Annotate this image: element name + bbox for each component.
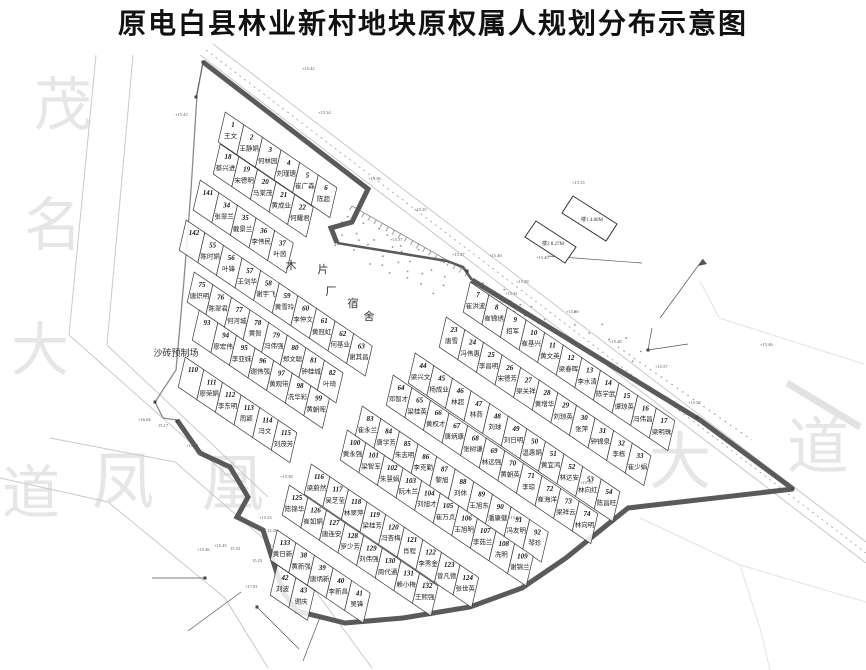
plot-number: 105 [443,502,454,510]
plot-owner-name: 朱慧娟 [380,474,400,483]
elevation-label: +17.81 [245,584,258,589]
plot-owner-name: 崔广森 [295,181,315,190]
plot-owner-name: 冯伟强 [264,341,284,350]
plot-number: 62 [339,330,347,338]
plot-number: 73 [565,497,573,505]
plot-owner-name: 梁关祥 [516,386,536,395]
plot-owner-name: 张翠兰 [214,211,234,220]
plot-owner-name: 张萍 [575,424,589,433]
plot-owner-name: 谢庆 [295,596,309,605]
plot-owner-name: 温惠娟 [522,447,542,456]
elevation-label: 15.28 [267,528,278,533]
plot-number: 15 [623,392,631,400]
plot-owner-name: 邓智才 [389,394,409,403]
plot-owner-name: 刘旭才 [417,499,437,508]
plot-owner-name: 梁祥云 [556,507,576,516]
map-canvas: 茂名大道凤凰大道1王文2王静娟3何林园4刘瑾瑭5崔广森6陈超18蔡兴进19宋德明… [0,0,866,670]
plot-owner-name: 马棠茂 [253,188,273,197]
elevation-label: +15.40 [489,253,502,258]
plot-number: 121 [407,536,418,544]
plot-owner-name: 陈锦华 [285,504,305,513]
plot-number: 102 [387,464,398,472]
plot-owner-name: 李秀金 [418,558,438,567]
plot-number: 124 [463,574,474,582]
plot-owner-name: 刘瑾瑭 [277,169,297,178]
plot-owner-name: 梁春晖 [559,364,579,373]
plot-owner-name: 黄朝英 [500,469,520,478]
plot-owner-name: 赖小梅 [396,579,416,588]
plot-owner-name: 陈学武 [596,389,616,398]
plot-number: 81 [310,357,317,365]
plot-owner-name: 冯文 [258,426,272,435]
plot-owner-name: 黄宜鸿 [541,460,561,469]
plot-number: 103 [406,477,417,485]
plan-map: 茂名大道凤凰大道1王文2王静娟3何林园4刘瑾瑭5崔广森6陈超18蔡兴进19宋德明… [0,0,866,670]
plot-owner-name: 张世英 [456,584,476,593]
plot-owner-name: 梁兴文 [411,372,431,381]
plot-owner-name: 罗少芳 [341,542,361,551]
plot-owner-name: 刘茂芳 [274,439,294,448]
plot-number: 82 [329,369,337,377]
plot-number: 69 [491,447,499,455]
plot-number: 26 [505,364,514,372]
plot-owner-name: 黄冠虹 [312,327,332,336]
plot-number: 41 [355,589,363,597]
plot-number: 67 [453,422,461,430]
plot-owner-name: 黄新强 [291,561,311,570]
plot-owner-name: 王旭明 [454,524,474,533]
plot-owner-name: 杨成业 [429,384,449,393]
plot-owner-name: 何基业 [331,340,351,349]
elevation-label: +15.30 [424,580,437,585]
plot-number: 3 [267,146,272,154]
plot-number: 88 [460,478,468,486]
plot-owner-name: 林远强 [482,457,502,466]
elevation-label: +15.48 [609,339,622,344]
plot-number: 44 [419,362,428,370]
plot-number: 95 [241,344,249,352]
elevation-label: +15.52 [688,400,701,405]
plot-number: 36 [259,227,268,235]
plot-owner-name: 刘琼英 [553,411,573,420]
plot-owner-name: 崔基兴 [522,339,542,348]
plot-owner-name: 刘休 [454,488,468,497]
plot-number: 17 [661,417,669,425]
plot-number: 42 [281,574,290,582]
plot-owner-name: 王剑华 [238,277,258,286]
plot-owner-name: 王静娟 [239,143,259,152]
plot-number: 35 [241,214,250,222]
plot-owner-name: 唐炽明 [190,291,210,300]
plot-owner-name: 王文 [224,131,238,140]
plot-owner-name: 刘伟强 [359,554,379,563]
plot-number: 52 [568,463,576,471]
plot-number: 51 [550,450,557,458]
plot-owner-name: 唐雪 [445,336,458,345]
plot-owner-name: 林向红 [578,485,598,494]
area-label: 厂 [326,286,337,298]
plot-owner-name: 黄权才 [426,419,446,428]
plot-number: 30 [580,414,589,422]
plot-number: 107 [480,527,491,535]
plot-number: 118 [351,498,362,506]
plot-owner-name: 李水清 [577,376,597,385]
elevation-label: +15.41 [505,291,518,296]
plot-number: 20 [261,178,270,186]
plot-number: 127 [329,519,340,527]
plot-number: 25 [487,351,496,359]
elevation-label: +15.39 [499,299,512,304]
plot-owner-name: 黄文英 [540,351,560,360]
plot-number: 76 [217,294,225,302]
plot-owner-name: 廖荣娟 [199,388,219,397]
plot-owner-name: 朱志明 [395,450,415,459]
elevation-label: +15.40 [536,255,549,260]
plot-owner-name: 周代通 [378,567,398,576]
plot-owner-name: 钟锦泉 [591,437,611,446]
plot-owner-name: 李栋 [612,449,626,458]
elevation-label: +15.33 [572,180,585,185]
plot-number: 22 [298,203,307,211]
plot-number: 34 [222,202,231,210]
elevation-label: +15.37 [390,237,403,242]
elevation-label: +15.36 [368,176,381,181]
plot-number: 2 [249,134,254,142]
plot-number: 110 [188,366,199,374]
elevation-label: +15.22 [508,515,521,520]
plot-owner-name: 林向明 [575,520,595,529]
plot-number: 12 [568,354,576,362]
plot-owner-name: 黄成业 [272,201,292,210]
plot-owner-name: 叶锋 [222,264,236,273]
plot-owner-name: 梁桂芳 [363,521,383,530]
plot-number: 72 [546,485,554,493]
plot-owner-name: 冯伟惠 [460,348,480,357]
plot-number: 142 [189,229,200,237]
plot-number: 1 [231,121,235,129]
elevation-label: +15.36 [566,309,579,314]
plot-number: 68 [472,434,480,442]
plot-number: 109 [517,552,528,560]
plot-number: 27 [524,376,533,384]
plot-number: 55 [209,242,217,250]
plot-owner-name: 陈昌旺 [597,498,617,507]
elevation-label: +16.04 [138,417,151,422]
plot-number: 71 [528,472,535,480]
plot-number: 101 [368,452,379,460]
plot-owner-name: 崔海洋 [538,495,558,504]
plot-number: 80 [292,344,300,352]
plot-number: 93 [204,319,212,327]
plot-number: 119 [370,511,381,519]
elevation-label: +15.42 [302,66,315,71]
plot-owner-name: 琴珍 [528,538,542,547]
plot-owner-name: 梁明珠 [652,427,672,436]
plot-owner-name: 梁蔚然 [307,483,327,492]
area-label: 沙砖预制场 [153,347,198,358]
watermark-char: 大 [11,318,69,383]
plot-number: 113 [244,404,255,412]
buildings: 楼1 4.80M楼2 8.27M [525,196,617,263]
plot-owner-name: 刘球 [488,422,502,431]
plot-number: 21 [279,191,287,199]
plot-number: 57 [246,267,254,275]
slope-tick-line [350,206,468,276]
plot-number: 141 [203,189,214,197]
plot-number: 37 [278,239,287,247]
elevation-label: 15.23 [252,558,263,563]
plot-number: 122 [425,549,436,557]
plot-owner-name: 林超 [451,397,465,406]
plot-number: 104 [424,489,435,497]
plot-number: 131 [403,570,414,578]
plot-owner-name: 李亚妹 [232,354,252,363]
plot-owner-name: 叶琦 [323,379,337,388]
plot-owner-name: 叶茵 [273,249,287,258]
plot-number: 94 [222,332,230,340]
elevation-label: +15.27 [452,252,465,257]
map-title: 原电白县林业新村地块原权属人规划分布示意图 [0,2,866,42]
plot-owner-name: 冯杏梅 [381,533,401,542]
plot-owner-name: 黄永强 [343,449,363,458]
watermark-char: 道 [2,461,60,526]
plot-number: 115 [281,429,292,437]
plot-number: 11 [549,341,556,349]
plot-owner-name: 陈时娟 [200,251,220,260]
plot-number: 38 [299,552,308,560]
plot-owner-name: 黄观带 [269,379,289,388]
plot-owner-name: 唐学芳 [376,437,396,446]
plot-number: 83 [367,415,375,423]
plot-owner-name: 宋德明 [234,175,254,184]
plot-number: 125 [292,494,303,502]
elevation-label: +15.57 [655,364,668,369]
plot-owner-name: 崔如娟 [303,516,323,525]
plot-owner-name: 谢伟强 [251,367,271,376]
plot-owner-name: 陈超 [317,194,331,203]
plot-owner-name: 吴锋 [350,599,364,608]
plot-number: 7 [476,291,480,299]
plot-owner-name: 崔洪波 [466,301,486,310]
plot-number: 60 [302,305,310,313]
plot-owner-name: 李琼 [522,482,536,491]
elevation-label: +15.34 [318,110,331,115]
plot-number: 112 [225,391,236,399]
plot-number: 28 [543,389,552,397]
plot-owner-name: 蔡兴进 [216,163,236,172]
plot-number: 10 [530,329,538,337]
plot-number: 108 [499,540,510,548]
plot-number: 61 [321,317,328,325]
plot-owner-name: 肖程 [403,546,417,555]
elevation-label: 15.33 [230,546,241,551]
plot-number: 24 [468,339,477,347]
plot-owner-name: 刘日明 [504,435,524,444]
plot-number: 6 [324,184,328,192]
plot-owner-name: 招军 [506,326,520,335]
elevation-label: +15.35 [580,480,593,485]
plot-number: 92 [534,528,542,536]
area-label: 片 [318,263,329,276]
plot-number: 40 [336,577,345,585]
plot-owner-name: 梁桂英 [407,406,427,415]
plot-number: 126 [310,507,321,515]
plot-owner-name: 何耀君 [290,213,310,222]
plot-number: 130 [385,557,396,565]
plot-number: 29 [561,402,570,410]
plot-number: 19 [243,166,251,174]
plot-owner-name: 刘波 [276,584,290,593]
plot-owner-name: 王熙强 [415,593,435,601]
plot-owner-name: 周颖 [240,415,254,423]
plot-owner-name: 唐连安 [322,529,342,538]
plots: 1王文2王静娟3何林园4刘瑾瑭5崔广森6陈超18蔡兴进19宋德明20马棠茂21黄… [178,112,675,623]
elevation-label: 15.17 [158,423,169,428]
watermark-char: 道 [787,414,849,482]
plot-number: 5 [306,171,310,179]
plot-owner-name: 林翠萍 [344,508,364,517]
area-label: 宿 [348,296,359,310]
elevation-label: +15.35 [414,207,427,212]
building-label: 楼1 4.80M [581,216,604,223]
plot-number: 123 [444,561,455,569]
plot-number: 33 [636,452,645,460]
plot-owner-name: 冼华彩 [288,392,308,401]
plot-number: 90 [497,503,505,511]
plot-number: 39 [318,564,327,572]
plot-owner-name: 黎旭 [435,475,449,484]
plot-number: 50 [531,438,539,446]
elevation-label: +15.38 [516,279,529,284]
plot-number: 46 [456,387,465,395]
plot-owner-name: 张树谦 [463,444,483,453]
plot-number: 47 [474,400,483,408]
plot-number: 64 [398,384,406,392]
elevation-label: +15.38 [280,474,293,479]
plot-number: 89 [478,491,486,499]
plot-number: 77 [236,306,244,314]
plot-number: 99 [315,395,323,403]
watermark-char: 茂 [34,73,92,138]
watermark-char: 凤 [92,449,154,517]
plot-number: 85 [404,440,412,448]
plot-number: 63 [358,342,366,350]
plot-number: 45 [437,375,446,383]
plot-number: 116 [314,473,325,481]
plot-number: 120 [388,523,399,531]
watermark-char: 名 [24,193,82,258]
plot-number: 114 [262,416,273,424]
elevation-label: +15.45 [214,543,227,548]
plot-number: 74 [584,510,592,518]
plot-number: 84 [385,428,393,436]
plot-owner-name: 崔锦绣 [484,313,504,322]
plot-number: 75 [199,281,207,289]
elevation-label: +15.26 [197,547,210,552]
plot-number: 128 [348,532,359,540]
plot-number: 133 [280,539,291,547]
plot-owner-name: 冯伟昌 [633,414,653,423]
plot-owner-name: 黄智 [249,329,262,338]
plot-number: 49 [512,425,521,433]
elevation-label: +15.21 [186,443,199,448]
plot-owner-name: 谢其昌 [349,352,369,361]
elevation-label: +15.46 [760,342,773,347]
plot-owner-name: 黄雪玲 [275,302,295,311]
plot-owner-name: 李茹兰 [473,537,493,546]
plot-number: 97 [278,369,286,377]
plot-owner-name: 陈翠君 [208,303,228,312]
plot-owner-name: 梁智军 [361,461,381,470]
plot-owner-name: 唐炳康 [445,432,465,441]
plot-owner-name: 李伟民 [252,237,272,246]
elevation-label: +15.43 [175,112,188,117]
area-label: 木 [286,259,297,272]
plot-number: 16 [642,404,650,412]
plot-owner-name: 何河城 [227,316,247,325]
plot-owner-name: 崔少娟 [628,462,648,471]
plot-number: 59 [284,292,292,300]
plot-number: 70 [509,460,517,468]
plot-owner-name: 林达安 [560,473,580,482]
plot-number: 18 [225,153,233,161]
plot-number: 4 [286,159,291,167]
plot-number: 9 [513,316,517,324]
elevation-label: +15.33 [259,515,272,520]
plot-owner-name: 潘康健 [488,513,508,522]
plot-owner-name: 唐炳新 [310,574,330,583]
plot-number: 58 [265,279,273,287]
plot-owner-name: 王旭东 [469,500,489,509]
plot-number: 23 [450,326,459,334]
plot-owner-name: 宋德芳 [498,374,518,383]
plot-owner-name: 崔万贞 [436,512,456,521]
plot-owner-name: 崔永兰 [358,425,378,434]
plot-number: 100 [350,439,361,447]
plot-owner-name: 曾凡德 [437,571,457,580]
plot-number: 56 [228,254,236,262]
plot-number: 66 [435,409,443,417]
plot-owner-name: 何林园 [258,156,278,165]
plot-number: 86 [422,453,430,461]
plot-owner-name: 谢宇飞 [256,289,276,298]
plot-owner-name: 谭琼英 [615,402,635,411]
plot-number: 106 [461,515,472,523]
plot-number: 111 [207,379,217,387]
plot-owner-name: 李新昌 [329,587,349,596]
plot-number: 78 [254,319,262,327]
plot-owner-name: 黄朝晖 [306,404,326,413]
plot-owner-name: 吴芝莹 [325,495,345,504]
plot-owner-name: 阮木兰 [399,487,419,496]
plot-owner-name: 李昌明 [479,361,499,370]
plot-number: 65 [416,397,424,405]
building-label: 楼2 8.27M [542,240,565,247]
plot-owner-name: 李仲文 [293,314,313,323]
plot-number: 31 [598,427,606,435]
plot-owner-name: 谢锦兰 [510,562,530,571]
plot-number: 54 [606,488,614,496]
plot-number: 32 [617,439,626,447]
plot-number: 43 [299,587,308,595]
plot-number: 87 [441,465,449,473]
plot-number: 13 [586,367,594,375]
plot-owner-name: 黄增华 [535,399,555,408]
plot-owner-name: 廖宏伟 [213,341,233,350]
plot-owner-name: 李克勤 [414,463,434,472]
plot-number: 79 [273,331,281,339]
plot-number: 8 [495,304,499,312]
